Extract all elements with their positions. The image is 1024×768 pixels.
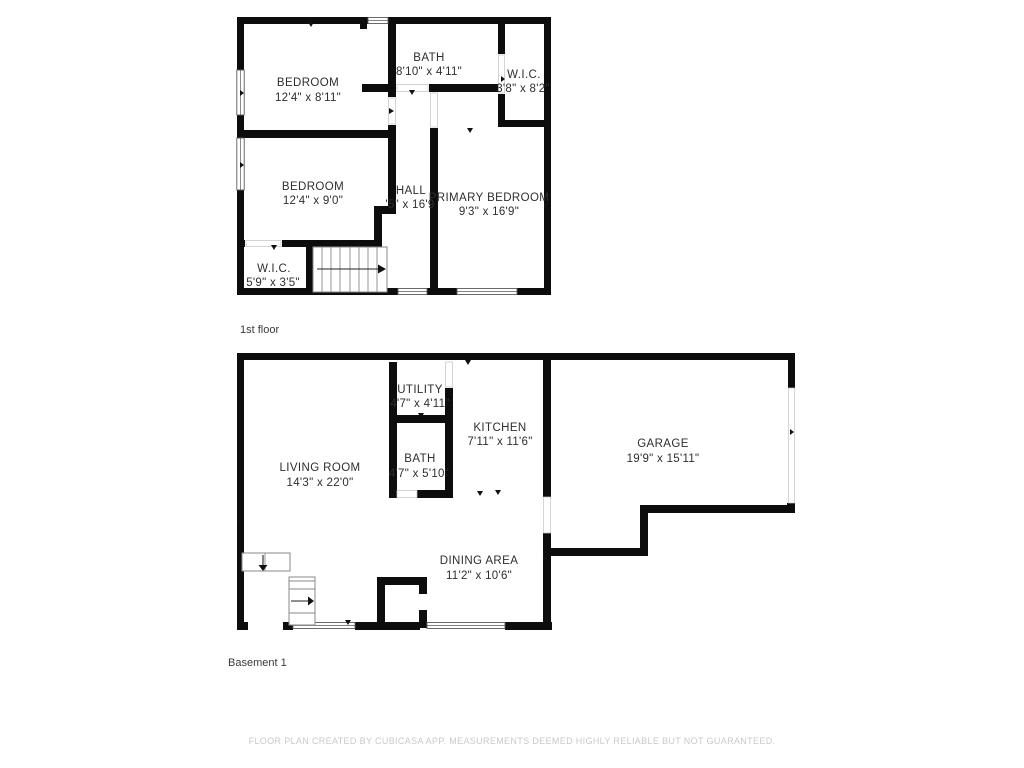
room-name-hall: HALL	[396, 185, 427, 197]
room-name-kitchen: KITCHEN	[473, 422, 526, 434]
room-name-bath-basement: BATH	[404, 453, 435, 465]
basement-door-ticks	[237, 360, 794, 625]
basement-stairs	[242, 553, 315, 625]
first-floor-stairs	[313, 247, 387, 292]
room-dims-bedroom-2: 12'4" x 9'0"	[283, 195, 343, 207]
basement-floor-label: Basement 1	[228, 657, 287, 669]
room-dims-utility: 4'7" x 4'11"	[390, 398, 449, 410]
room-dims-wic-top: 3'8" x 8'2"	[496, 83, 550, 95]
room-dims-bedroom-1: 12'4" x 8'11"	[275, 92, 341, 104]
room-dims-living-room: 14'3" x 22'0"	[287, 477, 354, 489]
room-dims-hall: '5" x 16'9	[385, 199, 434, 211]
room-dims-primary-bedroom: 9'3" x 16'9"	[459, 206, 519, 218]
footer-disclaimer: FLOOR PLAN CREATED BY CUBICASA APP. MEAS…	[249, 736, 776, 746]
room-name-wic-top: W.I.C.	[507, 69, 541, 81]
room-name-bedroom-1: BEDROOM	[277, 77, 339, 89]
room-dims-bath-basement: 4'7" x 5'10"	[389, 468, 449, 480]
room-name-bath-1f: BATH	[413, 52, 444, 64]
basement-plan: LIVING ROOM 14'3" x 22'0" UTILITY 4'7" x…	[228, 353, 795, 669]
room-dims-dining-area: 11'2" x 10'6"	[446, 570, 512, 582]
room-name-utility: UTILITY	[397, 384, 443, 396]
floor-plan-page: BEDROOM 12'4" x 8'11" BATH 8'10" x 4'11"…	[0, 0, 1024, 768]
basement-walls	[237, 353, 795, 630]
first-floor-label: 1st floor	[240, 324, 279, 336]
floor-plan-canvas: BEDROOM 12'4" x 8'11" BATH 8'10" x 4'11"…	[0, 0, 1024, 768]
room-name-living-room: LIVING ROOM	[279, 462, 360, 474]
room-name-garage: GARAGE	[637, 438, 689, 450]
room-name-dining-area: DINING AREA	[440, 555, 519, 567]
room-dims-garage: 19'9" x 15'11"	[627, 453, 700, 465]
room-dims-wic-bottom: 5'9" x 3'5"	[246, 277, 300, 289]
room-name-wic-bottom: W.I.C.	[257, 263, 291, 275]
room-dims-bath-1f: 8'10" x 4'11"	[396, 66, 462, 78]
room-name-primary-bedroom: PRIMARY BEDROOM	[429, 192, 550, 204]
first-floor-plan: BEDROOM 12'4" x 8'11" BATH 8'10" x 4'11"…	[237, 17, 551, 336]
room-dims-kitchen: 7'11" x 11'6"	[467, 436, 532, 448]
room-name-bedroom-2: BEDROOM	[282, 181, 344, 193]
garage-door-opening	[789, 388, 795, 503]
